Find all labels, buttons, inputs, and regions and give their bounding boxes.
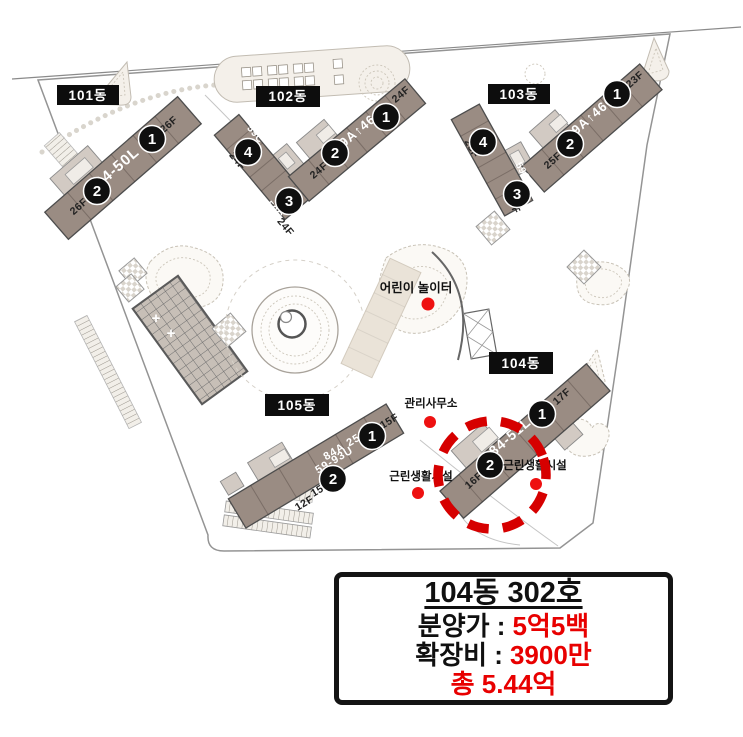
svg-text:4: 4: [479, 134, 488, 151]
badge-104-2: 2: [477, 452, 504, 479]
price-row: 분양가 :5억5백: [418, 612, 589, 641]
svg-text:1: 1: [613, 86, 621, 103]
badge-103-4: 4: [470, 129, 497, 156]
badge-102-1: 1: [373, 104, 400, 131]
extension-label: 확장비 :: [415, 640, 503, 670]
extension-row: 확장비 :3900만: [415, 641, 591, 670]
svg-text:3: 3: [285, 193, 293, 210]
retail-label: 근린생활시설: [503, 458, 566, 472]
unit-title: 104동 302호: [424, 578, 582, 608]
svg-text:2: 2: [93, 183, 101, 200]
badge-103-1: 1: [604, 81, 631, 108]
svg-text:4: 4: [244, 144, 253, 161]
svg-text:1: 1: [368, 428, 376, 445]
tree-mark: +: [398, 332, 407, 349]
dong-label-101: 101동: [57, 85, 119, 105]
badge-103-3: 3: [504, 181, 531, 208]
svg-text:2: 2: [566, 136, 574, 153]
dong-label-104: 104동: [489, 352, 553, 374]
svg-text:2: 2: [486, 457, 494, 474]
playground-label: 어린이 놀이터: [380, 280, 452, 295]
svg-text:101동: 101동: [69, 88, 108, 103]
svg-text:2: 2: [329, 471, 337, 488]
badge-105-2: 2: [320, 466, 347, 493]
badge-104-1: 1: [529, 401, 556, 428]
svg-text:3: 3: [513, 186, 521, 203]
svg-text:1: 1: [538, 406, 546, 423]
tree-mark: +: [410, 346, 419, 363]
badge-103-2: 2: [557, 131, 584, 158]
dong-label-103: 103동: [488, 84, 550, 104]
playground-dot: [422, 298, 435, 311]
retaining-strip: [75, 315, 142, 428]
price-label: 분양가 :: [418, 611, 506, 641]
tree-mark: +: [167, 325, 176, 342]
svg-text:1: 1: [382, 109, 390, 126]
dong-label-102: 102동: [256, 86, 320, 107]
total-price: 총 5.44억: [451, 670, 557, 699]
svg-text:104동: 104동: [502, 356, 541, 371]
extension-value: 3900만: [510, 640, 592, 670]
tree-mark: +: [152, 310, 161, 327]
badge-101-1: 1: [139, 126, 166, 153]
price-info-box: 104동 302호 분양가 :5억5백 확장비 :3900만 총 5.44억: [334, 572, 673, 705]
badge-102-2: 2: [322, 140, 349, 167]
retail-dot: [412, 487, 424, 499]
retail-dot: [530, 478, 542, 490]
badge-101-2: 2: [84, 178, 111, 205]
svg-text:102동: 102동: [269, 89, 308, 104]
svg-text:1: 1: [148, 131, 156, 148]
price-value: 5억5백: [512, 611, 589, 641]
svg-text:2: 2: [331, 145, 339, 162]
office-label: 관리사무소: [405, 396, 458, 410]
badge-102-4: 4: [235, 139, 262, 166]
svg-text:103동: 103동: [500, 87, 539, 102]
badge-102-3: 3: [276, 188, 303, 215]
svg-text:105동: 105동: [278, 398, 317, 413]
badge-105-1: 1: [359, 423, 386, 450]
retail-label: 근린생활시설: [389, 469, 452, 483]
dong-label-105: 105동: [265, 394, 329, 416]
office-dot: [424, 416, 436, 428]
